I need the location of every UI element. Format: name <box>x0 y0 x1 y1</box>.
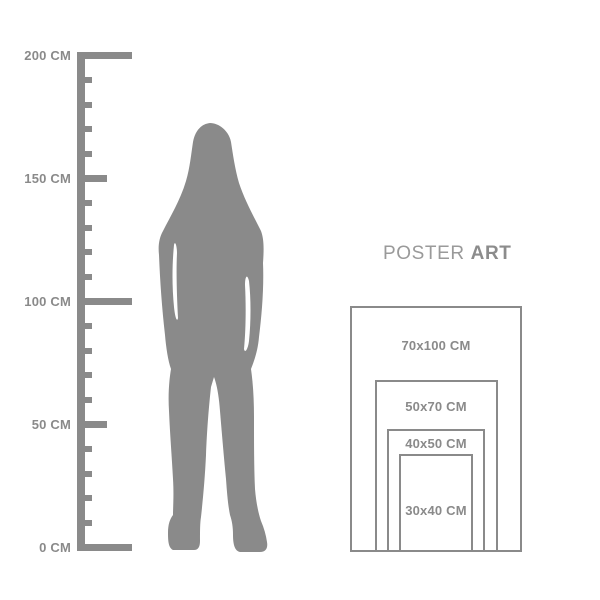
ruler-tick-0cm <box>77 544 132 551</box>
ruler-tick-60cm <box>77 397 92 403</box>
brand-word-regular: POSTER <box>383 243 465 264</box>
poster-label-30x40: 30x40 CM <box>399 503 473 519</box>
poster-label-70x100: 70x100 CM <box>350 338 522 354</box>
woman-silhouette <box>155 123 270 553</box>
ruler-tick-70cm <box>77 372 92 378</box>
ruler-tick-80cm <box>77 348 92 354</box>
ruler-tick-190cm <box>77 77 92 83</box>
ruler-tick-150cm <box>77 175 107 182</box>
ruler-tick-110cm <box>77 274 92 280</box>
ruler-label-200cm: 200 CM <box>0 48 71 64</box>
ruler-tick-200cm <box>77 52 132 59</box>
ruler-tick-10cm <box>77 520 92 526</box>
woman-silhouette-shape <box>159 123 268 552</box>
ruler-tick-130cm <box>77 225 92 231</box>
poster-size-guide: 200 CM150 CM100 CM50 CM0 CM POSTER ART 7… <box>0 0 600 600</box>
ruler-tick-100cm <box>77 298 132 305</box>
ruler-tick-140cm <box>77 200 92 206</box>
ruler-tick-40cm <box>77 446 92 452</box>
ruler-tick-30cm <box>77 471 92 477</box>
ruler-tick-120cm <box>77 249 92 255</box>
ruler-label-50cm: 50 CM <box>0 417 71 433</box>
ruler-label-100cm: 100 CM <box>0 294 71 310</box>
ruler-tick-50cm <box>77 421 107 428</box>
brand-word-bold: ART <box>471 243 512 264</box>
ruler-tick-160cm <box>77 151 92 157</box>
ruler-label-150cm: 150 CM <box>0 171 71 187</box>
ruler-label-0cm: 0 CM <box>0 540 71 556</box>
poster-label-50x70: 50x70 CM <box>375 399 498 415</box>
ruler-tick-170cm <box>77 126 92 132</box>
ruler-tick-180cm <box>77 102 92 108</box>
ruler-tick-20cm <box>77 495 92 501</box>
ruler-tick-90cm <box>77 323 92 329</box>
poster-label-40x50: 40x50 CM <box>387 436 485 452</box>
brand-logo: POSTER ART <box>383 243 511 265</box>
